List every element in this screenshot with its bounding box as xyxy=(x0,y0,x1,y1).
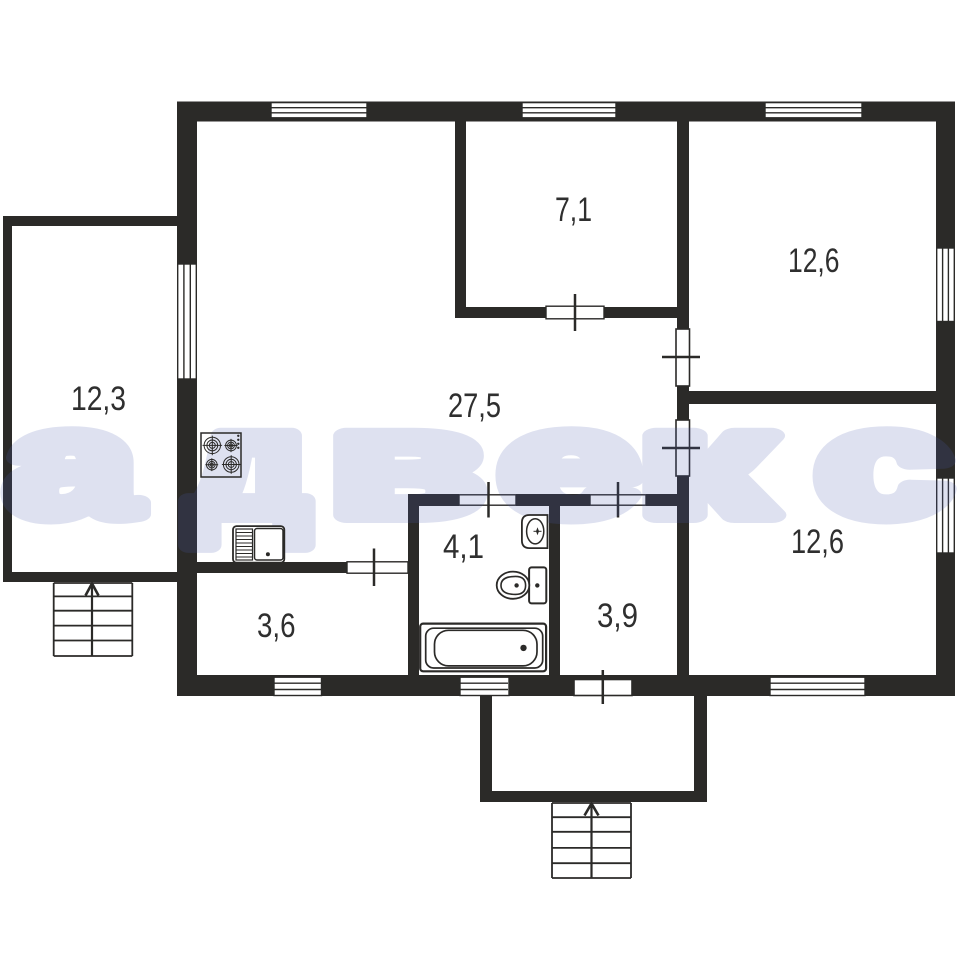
svg-text:4,1: 4,1 xyxy=(443,528,484,566)
svg-text:д: д xyxy=(187,379,309,547)
svg-text:12,3: 12,3 xyxy=(71,380,126,418)
svg-text:7,1: 7,1 xyxy=(555,191,592,229)
svg-text:3,6: 3,6 xyxy=(257,607,296,645)
svg-text:27,5: 27,5 xyxy=(448,387,501,425)
svg-text:с: с xyxy=(816,379,951,547)
svg-text:к: к xyxy=(638,379,774,547)
svg-text:12,6: 12,6 xyxy=(791,523,844,561)
svg-text:3,9: 3,9 xyxy=(597,597,638,635)
svg-text:12,6: 12,6 xyxy=(788,242,840,280)
svg-text:е: е xyxy=(499,379,639,547)
